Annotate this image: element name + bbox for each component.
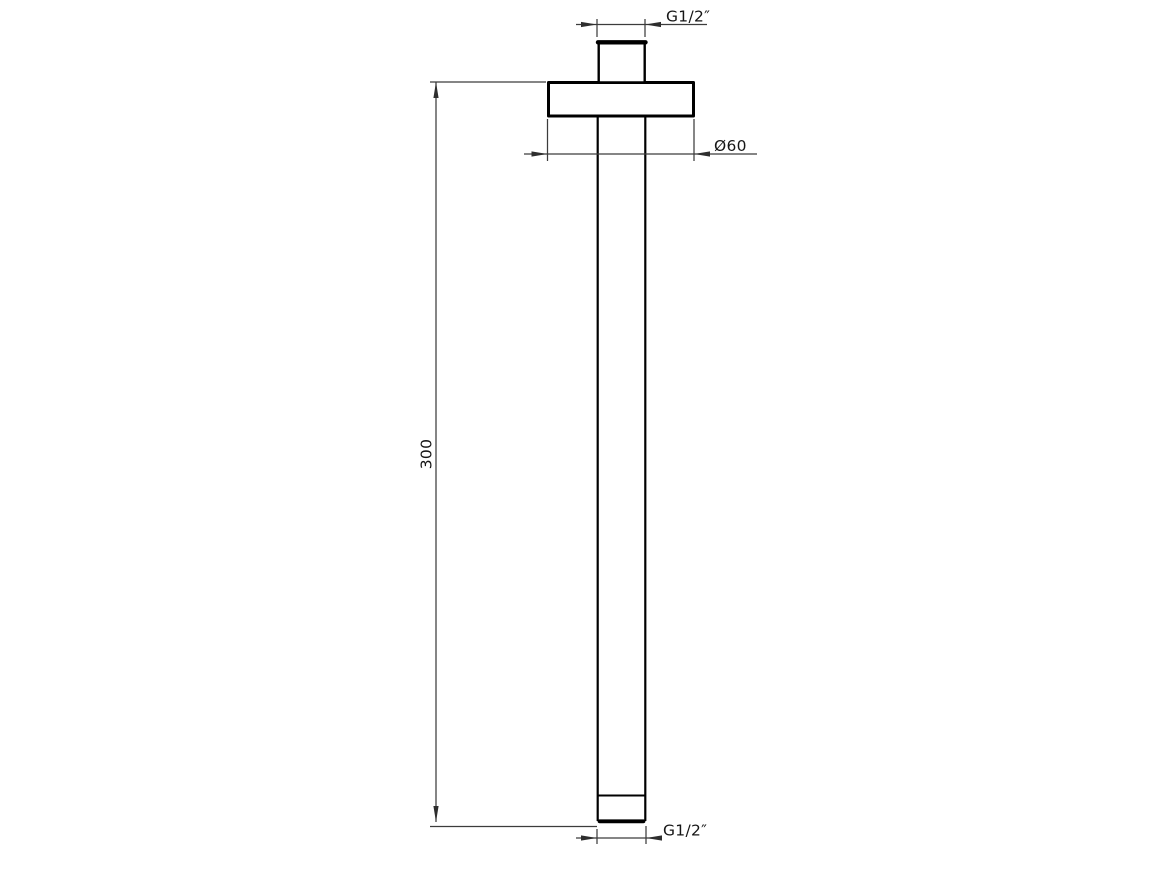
- dimension-label: G1/2″: [666, 8, 710, 26]
- arrowhead-right-icon: [581, 835, 597, 840]
- dimension-label: G1/2″: [663, 822, 707, 840]
- dim-bottom-thread: G1/2″: [576, 822, 707, 845]
- shower-arm-outline: [549, 42, 694, 821]
- arrowhead-right-icon: [532, 151, 548, 156]
- arrowhead-left-icon: [694, 151, 710, 156]
- dim-top-thread: G1/2″: [576, 8, 710, 38]
- dimension-label: Ø60: [714, 137, 747, 155]
- drawing-page: G1/2″ Ø60 300 G1/2″: [0, 0, 1160, 870]
- arrowhead-right-icon: [581, 22, 597, 27]
- arrowhead-down-icon: [433, 806, 438, 822]
- technical-drawing-canvas: G1/2″ Ø60 300 G1/2″: [0, 0, 1160, 870]
- arrowhead-left-icon: [646, 835, 662, 840]
- dim-flange-diameter: Ø60: [524, 119, 757, 161]
- arrowhead-left-icon: [645, 22, 661, 27]
- dimension-label: 300: [418, 439, 436, 470]
- arrowhead-up-icon: [433, 82, 438, 98]
- dim-arm-length: 300: [418, 82, 598, 827]
- top-thread-stub: [599, 42, 645, 83]
- mounting-flange: [549, 83, 694, 117]
